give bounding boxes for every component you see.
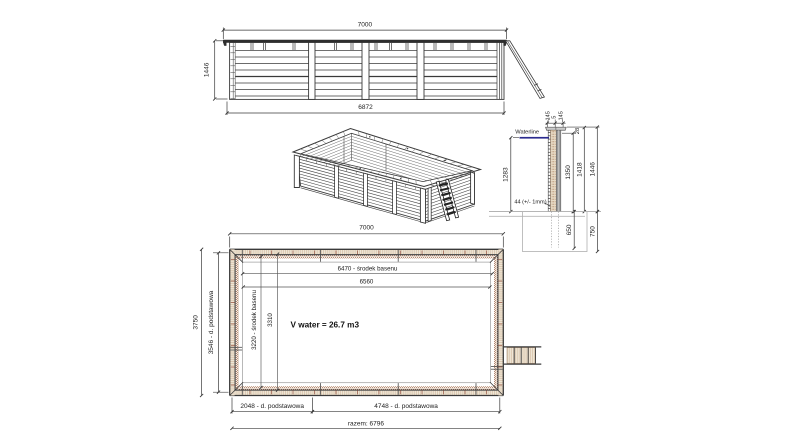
svg-text:3546 - d. podstawowa: 3546 - d. podstawowa (208, 290, 215, 354)
svg-text:6872: 6872 (358, 104, 373, 111)
svg-text:145: 145 (559, 111, 565, 120)
svg-text:1283: 1283 (503, 167, 510, 182)
svg-text:2048 - d. podstawowa: 2048 - d. podstawowa (240, 403, 304, 410)
svg-text:750: 750 (589, 226, 596, 237)
svg-text:1418: 1418 (576, 162, 583, 177)
svg-text:4748 - d. podstawowa: 4748 - d. podstawowa (374, 403, 438, 410)
svg-text:razem: 6796: razem: 6796 (348, 420, 385, 427)
svg-text:V water = 26.7 m3: V water = 26.7 m3 (291, 320, 360, 329)
svg-text:44 (+/- 1mm): 44 (+/- 1mm) (514, 199, 546, 205)
svg-text:28: 28 (575, 128, 581, 134)
svg-text:5: 5 (552, 116, 558, 119)
svg-text:1446: 1446 (589, 162, 596, 177)
svg-text:Waterline: Waterline (515, 130, 539, 136)
svg-text:6470 - środek basenu: 6470 - środek basenu (338, 265, 398, 272)
svg-text:7000: 7000 (359, 224, 374, 231)
svg-text:650: 650 (566, 224, 573, 235)
svg-text:3220 - środek basenu: 3220 - środek basenu (251, 290, 258, 350)
svg-text:7000: 7000 (358, 22, 373, 29)
svg-text:3750: 3750 (192, 315, 199, 330)
svg-text:1446: 1446 (204, 62, 211, 77)
svg-text:6560: 6560 (360, 279, 374, 286)
svg-text:3310: 3310 (267, 313, 274, 327)
svg-text:1350: 1350 (565, 165, 572, 180)
